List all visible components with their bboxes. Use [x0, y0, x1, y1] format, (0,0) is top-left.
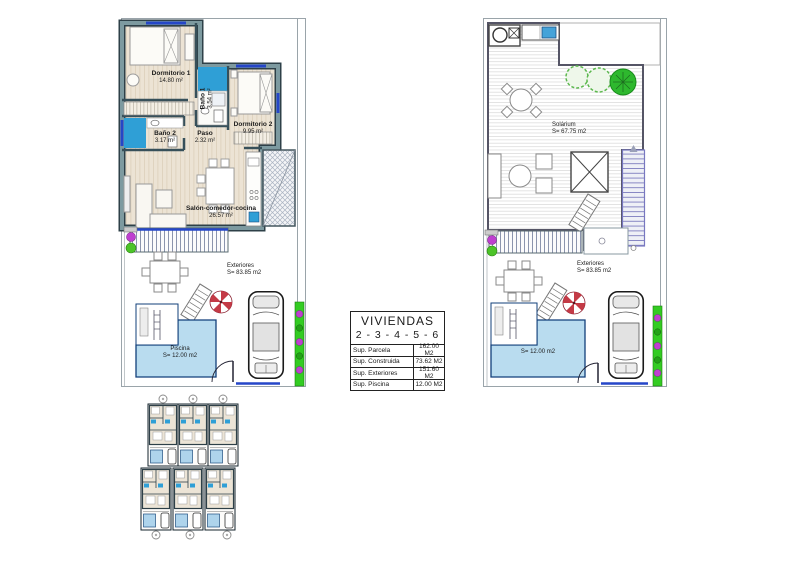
table-row: Sup. Exteriores 151.60 M2	[351, 368, 444, 380]
hedge	[295, 302, 304, 386]
room-label-salon: Salón-comedor-cocina 26.57 m²	[183, 205, 259, 220]
wardrobe	[124, 102, 194, 115]
stairs	[263, 150, 295, 226]
label-solarium: Solárium S= 67.75 m2	[552, 122, 586, 136]
table-row: Sup. Piscina 12.00 M2	[351, 380, 444, 391]
site-unit	[148, 404, 178, 466]
car-icon	[609, 292, 644, 379]
pergola	[489, 231, 582, 253]
sun-lounger-icon	[181, 284, 212, 322]
room-label-dormitorio-2: Dormitorio 2 9.95 m²	[223, 121, 283, 136]
label-exteriores-left: Exteriores S= 83.85 m2	[227, 263, 261, 277]
car-icon	[249, 292, 284, 379]
parasol-icon	[563, 292, 585, 314]
room-label-bano-1: Baño 1 3.54 m²	[200, 81, 215, 115]
summary-title: VIVIENDAS	[351, 314, 444, 328]
parasol-icon	[210, 291, 232, 313]
stair-landing	[584, 228, 628, 254]
sun-lounger-icon	[536, 283, 567, 321]
summary-table: VIVIENDAS 2 - 3 - 4 - 5 - 6 Sup. Parcela…	[350, 311, 445, 391]
plan-drawing	[0, 0, 800, 565]
site-plan	[141, 395, 238, 539]
site-unit	[173, 468, 203, 530]
skylight	[571, 152, 608, 192]
summary-subtitle: 2 - 3 - 4 - 5 - 6	[351, 329, 444, 341]
site-unit	[208, 404, 238, 466]
pergola	[130, 228, 228, 252]
hedge	[653, 306, 662, 386]
site-unit	[141, 468, 171, 530]
site-unit	[178, 404, 208, 466]
garden-table-icon	[496, 261, 542, 301]
label-piscina-right: S= 12.00 m2	[508, 349, 568, 356]
floor-plan-sheet: Dormitorio 1 14.80 m² Baño 1 3.54 m² Dor…	[0, 0, 800, 565]
site-unit	[205, 468, 235, 530]
label-exteriores-right: Exteriores S= 83.85 m2	[577, 261, 611, 275]
table-row: Sup. Parcela 162.00 M2	[351, 345, 444, 357]
summary-table-header: VIVIENDAS 2 - 3 - 4 - 5 - 6	[351, 312, 444, 345]
pool	[136, 304, 216, 377]
room-label-bano-2: Baño 2 3.17 m²	[140, 130, 190, 145]
roof-void	[559, 23, 660, 65]
room-label-paso: Paso 2.32 m²	[185, 130, 225, 145]
roof-plan	[484, 19, 667, 387]
garden-table-icon	[142, 252, 188, 292]
label-piscina-left: Piscina S= 12.00 m2	[150, 346, 210, 360]
room-label-dormitorio-1: Dormitorio 1 14.80 m²	[141, 70, 201, 85]
